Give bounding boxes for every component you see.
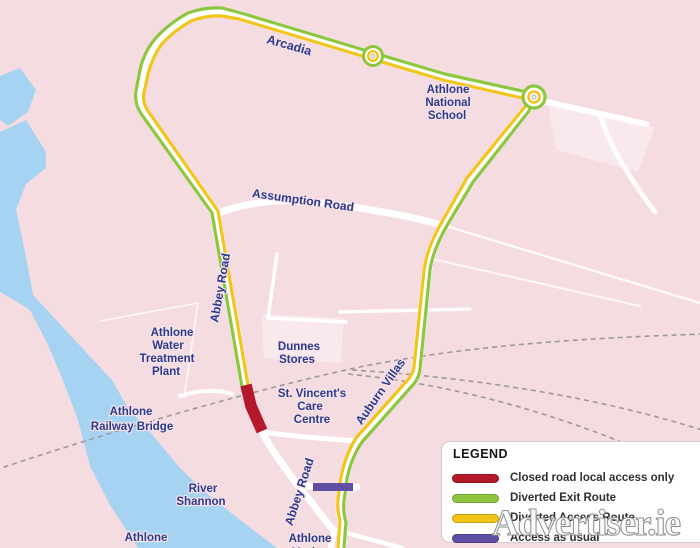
label-athlone-marina-1: Athlone: [289, 533, 332, 545]
legend-item-closed-road: Closed road local access only: [452, 468, 700, 488]
abbey-road-south-tail: [331, 531, 334, 548]
diversion-map: Arcadia Athlone National School Assumpti…: [0, 0, 700, 548]
diverted-access-swatch: [452, 514, 499, 523]
diverted-exit-swatch: [452, 494, 499, 503]
legend-item-access-usual: Access as usual: [452, 528, 700, 548]
label-st-vincents-2: Care: [297, 401, 323, 413]
label-water-treatment-1: Athlone: [151, 327, 194, 339]
label-dunnes-stores-2: Stores: [279, 354, 315, 366]
label-dunnes-stores-1: Dunnes: [278, 341, 320, 353]
label-river-shannon-1: River: [189, 483, 218, 495]
label-st-vincents-1: St. Vincent's: [278, 388, 346, 400]
roundabout-school: [523, 86, 545, 108]
legend-item-label: Diverted Access Route: [510, 512, 635, 524]
label-water-treatment-4: Plant: [152, 366, 180, 378]
legend-item-label: Access as usual: [510, 532, 600, 544]
label-athlone-national-school-1: Athlone: [427, 84, 470, 96]
legend-panel: LEGEND Closed road local access only Div…: [441, 441, 700, 543]
label-railway-bridge-2: Railway Bridge: [91, 421, 173, 433]
legend-title: LEGEND: [453, 447, 700, 461]
legend-item-diverted-access: Diverted Access Route: [452, 508, 700, 528]
closed-road-swatch: [452, 474, 499, 483]
label-st-vincents-3: Centre: [294, 414, 330, 426]
label-railway-bridge-1: Athlone: [110, 406, 153, 418]
label-athlone-national-school-3: School: [428, 110, 466, 122]
label-athlone-southwest: Athlone: [125, 532, 168, 544]
access-usual-swatch: [452, 534, 499, 543]
label-water-treatment-2: Water: [152, 340, 184, 352]
legend-item-label: Diverted Exit Route: [510, 492, 616, 504]
label-water-treatment-3: Treatment: [140, 353, 195, 365]
roundabout-arcadia: [364, 47, 383, 66]
legend-item-diverted-exit: Diverted Exit Route: [452, 488, 700, 508]
label-river-shannon-2: Shannon: [176, 496, 225, 508]
legend-item-label: Closed road local access only: [510, 472, 674, 484]
label-athlone-national-school-2: National: [425, 97, 470, 109]
